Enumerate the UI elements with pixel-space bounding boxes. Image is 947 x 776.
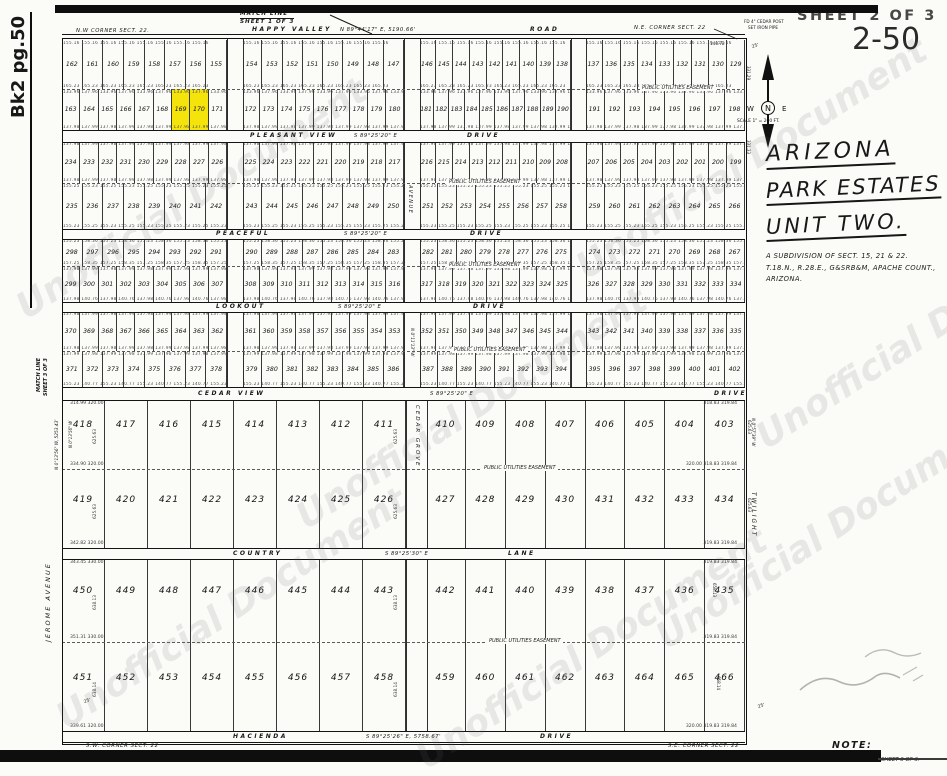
lot-number: 270 xyxy=(669,249,681,256)
east-dim-2: 331.33 xyxy=(746,140,751,154)
lot-number: 193 xyxy=(629,106,641,113)
lot-163: 163 xyxy=(62,89,80,130)
lot-number: 393 xyxy=(536,366,548,373)
pleasant-view-bearing: S 89°25'20" E xyxy=(354,133,397,139)
lot-223: 223 xyxy=(278,141,296,183)
lot-number: 328 xyxy=(623,281,635,288)
lot-number: 149 xyxy=(347,61,359,68)
lot-number: 382 xyxy=(306,366,318,373)
lot-number: 222 xyxy=(299,159,311,166)
utilities-easement-label: PUBLIC UTILITIES EASEMENT xyxy=(447,262,523,268)
lot-424: 424 xyxy=(277,469,320,548)
lot-number: 233 xyxy=(83,159,95,166)
lot-number: 326 xyxy=(587,281,599,288)
lot-number: 427 xyxy=(435,495,455,505)
lot-407: 407 xyxy=(546,399,586,469)
lot-number: 422 xyxy=(202,495,222,505)
lot-215: 215 xyxy=(436,141,453,183)
plat-document-page: Bk2 pg.50 SHEET 2 OF 3 2-50 MATCH LINE S… xyxy=(0,0,947,776)
lot-number: 223 xyxy=(281,159,293,166)
lot-number: 316 xyxy=(389,281,401,288)
lot-453: 453 xyxy=(148,642,191,731)
lot-number: 443 xyxy=(374,586,394,596)
lot-number: 182 xyxy=(435,106,447,113)
lot-number: 370 xyxy=(65,328,77,335)
lot-243: 243 xyxy=(242,183,262,229)
lot-number: 363 xyxy=(193,328,205,335)
lot-row-r7-seg3: 352351350349348347346345344137.98 137.99… xyxy=(419,311,571,351)
lot-number: 445 xyxy=(288,586,308,596)
lot-number: 249 xyxy=(367,203,379,210)
row-side-dimension: 638.13 xyxy=(394,595,399,610)
street-lookout-drive xyxy=(62,302,745,313)
lot-number: 176 xyxy=(317,106,329,113)
lot-436: 436 xyxy=(665,558,705,642)
lot-number: 276 xyxy=(536,249,548,256)
lot-241: 241 xyxy=(186,183,207,229)
lot-192: 192 xyxy=(605,89,625,130)
lot-number: 331 xyxy=(676,281,688,288)
lot-number: 261 xyxy=(629,203,641,210)
lot-number: 386 xyxy=(387,366,399,373)
lot-number: 277 xyxy=(517,249,529,256)
lot-row-r8-seg4: 395396397398399400401402137.99 137.98 13… xyxy=(585,351,745,387)
lot-number: 407 xyxy=(555,420,575,430)
lot-number: 293 xyxy=(169,249,181,256)
lot-number: 339 xyxy=(659,328,671,335)
lot-row-r6-seg2: 308309310311312313314315316137.98 137.99… xyxy=(242,266,404,302)
lot-number: 462 xyxy=(555,673,575,683)
lot-number: 203 xyxy=(659,159,671,166)
lot-number: 411 xyxy=(374,420,394,430)
lot-number: 347 xyxy=(505,328,517,335)
lot-number: 349 xyxy=(472,328,484,335)
cedar-view-bearing: S 89°25'20" E xyxy=(430,391,473,397)
lot-number: 438 xyxy=(595,586,615,596)
lot-dimensions-bottom: 137.98 137.99 137.98 137.99 137.98 137.9… xyxy=(420,125,570,129)
lot-number: 218 xyxy=(371,159,383,166)
row-dim-bottom-left: 351.31 330.00 xyxy=(70,635,104,640)
lot-number: 263 xyxy=(669,203,681,210)
lot-row-r4-seg3: 251252253254255256257258155.25 155.23 15… xyxy=(419,183,571,229)
lot-444: 444 xyxy=(320,558,363,642)
lot-number: 426 xyxy=(374,495,394,505)
lot-number: 413 xyxy=(288,420,308,430)
lot-196: 196 xyxy=(685,89,705,130)
lot-row-r9-seg1: 418417416415414413412411314.99 320.00334… xyxy=(62,399,406,469)
lot-168: 168 xyxy=(154,89,172,130)
lot-250: 250 xyxy=(384,183,404,229)
lot-dimensions-top: 137.98 137.99 137.98 137.99 137.98 137.9… xyxy=(243,267,403,271)
lot-number: 219 xyxy=(353,159,365,166)
lot-row-r10-seg1: 419420421422423424425426342.82 320.00625… xyxy=(62,469,406,548)
row-side-dimension: 638.14 xyxy=(93,681,98,696)
lot-number: 398 xyxy=(649,366,661,373)
lot-number: 237 xyxy=(107,203,119,210)
lot-164: 164 xyxy=(80,89,98,130)
lot-187: 187 xyxy=(510,89,525,130)
scan-edge-top xyxy=(55,5,878,13)
lot-236: 236 xyxy=(83,183,104,229)
lot-number: 279 xyxy=(479,249,491,256)
lot-173: 173 xyxy=(260,89,278,130)
lot-number: 385 xyxy=(367,366,379,373)
lot-218: 218 xyxy=(368,141,386,183)
hacienda-bearing: S 89°25'26" E, 5758.67' xyxy=(366,734,441,740)
lot-number: 392 xyxy=(517,366,529,373)
lot-number: 152 xyxy=(286,61,298,68)
lot-432: 432 xyxy=(625,469,665,548)
lot-number: 292 xyxy=(190,249,202,256)
lot-441: 441 xyxy=(466,558,506,642)
lot-number: 266 xyxy=(729,203,741,210)
lot-number: 430 xyxy=(555,495,575,505)
lot-number: 216 xyxy=(421,159,433,166)
lot-number: 180 xyxy=(389,106,401,113)
lot-number: 439 xyxy=(555,586,575,596)
lot-number: 165 xyxy=(101,106,113,113)
lot-number: 332 xyxy=(694,281,706,288)
lot-number: 294 xyxy=(148,249,160,256)
lot-450: 450 xyxy=(62,558,105,642)
lot-number: 272 xyxy=(629,249,641,256)
lot-number: 289 xyxy=(266,249,278,256)
lot-number: 232 xyxy=(101,159,113,166)
lot-number: 384 xyxy=(347,366,359,373)
lot-dimensions-bottom: 157.25 158.35 157.25 158.35 157.25 158.3… xyxy=(63,261,226,265)
lot-dimensions-bottom: 155.23 140.77 155.23 140.77 155.23 140.7… xyxy=(586,382,744,386)
lot-433: 433 xyxy=(665,469,705,548)
lot-number: 157 xyxy=(169,61,181,68)
lot-number: 431 xyxy=(595,495,615,505)
lot-number: 334 xyxy=(730,281,742,288)
utilities-easement-label: PUBLIC UTILITIES EASEMENT xyxy=(640,85,716,91)
lot-number: 313 xyxy=(335,281,347,288)
lot-number: 307 xyxy=(211,281,223,288)
lot-number: 380 xyxy=(266,366,278,373)
lot-number: 221 xyxy=(317,159,329,166)
lot-number: 281 xyxy=(441,249,453,256)
lot-number: 139 xyxy=(539,61,551,68)
lot-number: 333 xyxy=(712,281,724,288)
lot-number: 372 xyxy=(87,366,99,373)
utilities-easement-line xyxy=(62,183,745,184)
row-dim-top-left: 343.45 330.00 xyxy=(70,560,104,565)
lot-number: 246 xyxy=(306,203,318,210)
lot-448: 448 xyxy=(148,558,191,642)
lot-number: 450 xyxy=(73,586,93,596)
lot-number: 378 xyxy=(210,366,222,373)
lot-number: 288 xyxy=(286,249,298,256)
lot-421: 421 xyxy=(148,469,191,548)
lot-dimensions-bottom: 137.98 137.99 137.98 137.99 137.98 137.9… xyxy=(243,178,403,182)
lot-181: 181 xyxy=(419,89,434,130)
lot-number: 220 xyxy=(335,159,347,166)
lot-number: 373 xyxy=(107,366,119,373)
lot-number: 210 xyxy=(522,159,534,166)
lot-dimensions-bottom: 137.98 140.76 137.98 140.76 137.98 140.7… xyxy=(586,297,744,301)
lot-number: 247 xyxy=(327,203,339,210)
lot-dimensions-top: 133.96 137.96 133.96 137.96 133.96 137.9… xyxy=(420,90,570,94)
lot-number: 265 xyxy=(709,203,721,210)
lot-425: 425 xyxy=(320,469,363,548)
lot-number: 335 xyxy=(730,328,742,335)
lot-177: 177 xyxy=(332,89,350,130)
se-corner-label: S.E. CORNER SECT. 22 xyxy=(668,743,739,749)
lookout-name: LOOKOUT xyxy=(216,303,266,310)
utilities-easement-line xyxy=(62,351,745,352)
row-dim-bottom-left: 342.82 320.00 xyxy=(70,541,104,546)
lot-430: 430 xyxy=(546,469,586,548)
lot-number: 285 xyxy=(347,249,359,256)
title-line-3: UNIT TWO. xyxy=(765,209,906,242)
lot-188: 188 xyxy=(525,89,540,130)
subtitle-line-1: A SUBDIVISION OF SECT. 15, 21 & 22. xyxy=(766,251,941,263)
lot-number: 284 xyxy=(367,249,379,256)
lot-number: 444 xyxy=(331,586,351,596)
lot-number: 151 xyxy=(306,61,318,68)
lot-number: 213 xyxy=(472,159,484,166)
lot-number: 168 xyxy=(156,106,168,113)
lot-dimensions-bottom: 155.23 155.25 155.23 155.25 155.23 155.2… xyxy=(586,224,744,228)
lot-193: 193 xyxy=(625,89,645,130)
lot-dimensions-bottom: 137.98 137.99 137.98 137.99 137.98 137.9… xyxy=(586,178,744,182)
lot-205: 205 xyxy=(621,141,639,183)
row-dim-bottom-left: 334.90 320.00 xyxy=(70,462,104,467)
lot-number: 320 xyxy=(472,281,484,288)
lot-number: 376 xyxy=(169,366,181,373)
lot-number: 241 xyxy=(190,203,202,210)
lot-dimensions-bottom: 137.98 137.99 137.98 137.99 137.98 137.9… xyxy=(63,125,226,129)
lot-number: 296 xyxy=(107,249,119,256)
lot-233: 233 xyxy=(80,141,98,183)
lot-number: 260 xyxy=(609,203,621,210)
lot-number: 159 xyxy=(128,61,140,68)
lot-row-r5-seg4: 274273272271270269268267155.23 158.36 15… xyxy=(585,238,745,266)
lot-260: 260 xyxy=(605,183,625,229)
lot-186: 186 xyxy=(495,89,510,130)
lot-number: 409 xyxy=(475,420,495,430)
lot-number: 229 xyxy=(156,159,168,166)
lot-number: 311 xyxy=(299,281,311,288)
lot-262: 262 xyxy=(645,183,665,229)
lot-number: 234 xyxy=(65,159,77,166)
lot-number: 137 xyxy=(587,61,599,68)
lot-238: 238 xyxy=(124,183,145,229)
lot-number: 436 xyxy=(675,586,695,596)
lot-number: 208 xyxy=(556,159,568,166)
lot-number: 461 xyxy=(515,673,535,683)
lot-number: 375 xyxy=(148,366,160,373)
pleasant-view-name: PLEASANT VIEW xyxy=(250,132,337,139)
lot-number: 287 xyxy=(306,249,318,256)
lot-number: 150 xyxy=(327,61,339,68)
lot-174: 174 xyxy=(278,89,296,130)
lot-242: 242 xyxy=(206,183,227,229)
lot-420: 420 xyxy=(105,469,148,548)
lot-dimensions-bottom: 165.23 165.23 165.23 165.23 165.23 165.2… xyxy=(243,84,403,88)
row-side-dimension: 625.63 xyxy=(93,429,98,444)
lot-number: 262 xyxy=(649,203,661,210)
lot-number: 280 xyxy=(460,249,472,256)
lot-number: 434 xyxy=(714,495,734,505)
title-line-2: PARK ESTATES xyxy=(765,171,941,206)
lot-number: 425 xyxy=(331,495,351,505)
subtitle-line-3: ARIZONA. xyxy=(766,274,941,286)
compass-w: W xyxy=(747,105,754,113)
lot-number: 209 xyxy=(539,159,551,166)
row-dim-top-left: 314.99 320.00 xyxy=(70,401,104,406)
scan-edge-bottom xyxy=(0,750,881,762)
lot-246: 246 xyxy=(303,183,323,229)
lot-number: 235 xyxy=(66,203,78,210)
lookout-suffix: DRIVE xyxy=(473,303,506,310)
lot-number: 255 xyxy=(498,203,510,210)
lot-number: 340 xyxy=(641,328,653,335)
utilities-easement-line xyxy=(62,469,745,470)
lot-number: 346 xyxy=(522,328,534,335)
lot-170: 170 xyxy=(190,89,208,130)
lot-row-r2-seg1: 163164165166167168169170171133.96 137.96… xyxy=(62,89,227,130)
lot-220: 220 xyxy=(332,141,350,183)
lot-number: 305 xyxy=(175,281,187,288)
lot-number: 441 xyxy=(475,586,495,596)
lot-number: 256 xyxy=(517,203,529,210)
lot-number: 133 xyxy=(659,61,671,68)
lot-number: 267 xyxy=(729,249,741,256)
lot-251: 251 xyxy=(419,183,438,229)
lot-200: 200 xyxy=(709,141,727,183)
lot-224: 224 xyxy=(260,141,278,183)
lot-number: 343 xyxy=(587,328,599,335)
lot-number: 197 xyxy=(709,106,721,113)
lot-number: 286 xyxy=(327,249,339,256)
lot-number: 183 xyxy=(451,106,463,113)
lot-number: 377 xyxy=(190,366,202,373)
lot-number: 454 xyxy=(202,673,222,683)
lot-number: 420 xyxy=(116,495,136,505)
lot-row-r4-seg2: 243244245246247248249250155.25 155.23 15… xyxy=(242,183,404,229)
lot-419: 419 xyxy=(62,469,105,548)
lot-428: 428 xyxy=(466,469,506,548)
scan-edge-bottom-right xyxy=(878,758,947,760)
utilities-easement-label: PUBLIC UTILITIES EASEMENT xyxy=(487,638,563,644)
lot-number: 187 xyxy=(511,106,523,113)
lot-235: 235 xyxy=(62,183,83,229)
lot-number: 132 xyxy=(676,61,688,68)
lot-number: 253 xyxy=(460,203,472,210)
lot-number: 412 xyxy=(331,420,351,430)
lot-number: 169 xyxy=(175,106,187,113)
lot-number: 336 xyxy=(712,328,724,335)
lot-number: 230 xyxy=(138,159,150,166)
lot-number: 297 xyxy=(87,249,99,256)
lot-number: 365 xyxy=(156,328,168,335)
lot-452: 452 xyxy=(105,642,148,731)
lot-211: 211 xyxy=(503,141,520,183)
lot-number: 130 xyxy=(712,61,724,68)
lot-number: 178 xyxy=(353,106,365,113)
lot-253: 253 xyxy=(457,183,476,229)
lot-403: 403 xyxy=(705,399,745,469)
lot-447: 447 xyxy=(191,558,234,642)
east-dim-3: 625.63 xyxy=(747,420,752,434)
lot-number: 309 xyxy=(263,281,275,288)
lot-254: 254 xyxy=(476,183,495,229)
lot-row-r10-seg2: 427428429430431432433434319.83 319.84 xyxy=(426,469,745,548)
pleasant-view-suffix: DRIVE xyxy=(467,132,500,139)
lot-number: 199 xyxy=(730,159,742,166)
lot-dimensions-top: 133.96 137.96 133.96 137.96 133.96 137.9… xyxy=(63,90,226,94)
east-dim-6: 658.14 xyxy=(716,676,721,690)
lot-number: 258 xyxy=(555,203,567,210)
lot-203: 203 xyxy=(656,141,674,183)
lot-number: 367 xyxy=(120,328,132,335)
lot-175: 175 xyxy=(296,89,314,130)
lot-number: 295 xyxy=(128,249,140,256)
lot-number: 141 xyxy=(505,61,517,68)
lot-number: 314 xyxy=(353,281,365,288)
lot-195: 195 xyxy=(665,89,685,130)
lot-416: 416 xyxy=(148,399,191,469)
lot-number: 226 xyxy=(211,159,223,166)
lot-number: 315 xyxy=(371,281,383,288)
lot-dimensions-bottom: 165.23 165.23 165.23 165.23 165.23 165.2… xyxy=(63,84,226,88)
lot-number: 283 xyxy=(387,249,399,256)
lot-dimensions-bottom: 157.25 158.35 157.25 158.35 157.25 158.3… xyxy=(243,261,403,265)
lot-number: 264 xyxy=(689,203,701,210)
lot-number: 338 xyxy=(676,328,688,335)
lot-number: 269 xyxy=(689,249,701,256)
lot-445: 445 xyxy=(277,558,320,642)
lot-263: 263 xyxy=(665,183,685,229)
utilities-easement-label: PUBLIC UTILITIES EASEMENT xyxy=(452,347,528,353)
lot-number: 446 xyxy=(245,586,265,596)
lot-row-r12-seg1: 451452453454455456457458339.61 320.00638… xyxy=(62,642,406,731)
lot-number: 251 xyxy=(422,203,434,210)
lot-435: 435 xyxy=(705,558,745,642)
sw-corner-label: S.W. CORNER SECT. 22 xyxy=(86,743,159,749)
lot-row-r2-seg3: 181182183184185186187188189190133.96 137… xyxy=(419,89,571,130)
lot-number: 214 xyxy=(455,159,467,166)
lot-226: 226 xyxy=(209,141,227,183)
lot-462: 462 xyxy=(546,642,586,731)
lot-225: 225 xyxy=(242,141,260,183)
lot-190: 190 xyxy=(556,89,571,130)
row-side-dimension: 625.63 xyxy=(394,429,399,444)
lot-number: 158 xyxy=(148,61,160,68)
lot-number: 390 xyxy=(479,366,491,373)
lot-dimensions-bottom: 155.23 155.25 155.23 155.25 155.23 155.2… xyxy=(63,224,226,228)
lot-row-r3-seg3: 216215214213212211210209208137.98 137.99… xyxy=(419,141,571,183)
lot-row-r11-seg1: 450449448447446445444443343.45 330.00351… xyxy=(62,558,406,642)
west-boundary-bearing-2: N 0°13'56" W xyxy=(68,421,73,448)
cedar-grove-vertical-name: CEDAR GROVE xyxy=(414,405,420,468)
lot-dimensions-bottom: 157.25 158.35 157.25 158.35 157.25 158.3… xyxy=(586,261,744,265)
lot-number: 248 xyxy=(347,203,359,210)
lot-number: 364 xyxy=(175,328,187,335)
lot-249: 249 xyxy=(364,183,384,229)
lot-number: 252 xyxy=(441,203,453,210)
lot-number: 464 xyxy=(635,673,655,683)
match-line-left-line2: SHEET 3 OF 3 xyxy=(43,358,49,396)
lot-number: 134 xyxy=(641,61,653,68)
lot-248: 248 xyxy=(343,183,363,229)
lot-number: 204 xyxy=(641,159,653,166)
lot-414: 414 xyxy=(234,399,277,469)
lot-number: 144 xyxy=(455,61,467,68)
lot-number: 321 xyxy=(489,281,501,288)
